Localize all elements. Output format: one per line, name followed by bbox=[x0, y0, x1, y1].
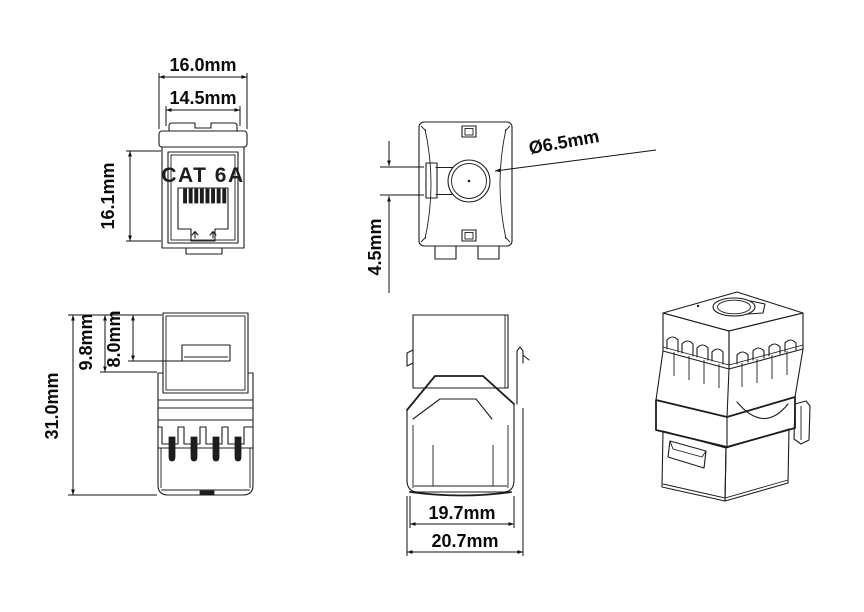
iso-cable-hole bbox=[713, 298, 755, 316]
iso-tower-slots bbox=[674, 351, 787, 388]
top-body-outline bbox=[419, 122, 512, 246]
iso-idc-teeth bbox=[667, 337, 796, 364]
roof-chamfer bbox=[407, 376, 514, 410]
product-label: CAT 6A bbox=[161, 164, 244, 187]
dim-label-hole-diameter: Ø6.5mm bbox=[527, 126, 600, 158]
hole-center-mark bbox=[468, 180, 471, 183]
dim-label-slot-offset: 4.5mm bbox=[365, 218, 385, 275]
ext-lines-4-5 bbox=[380, 167, 424, 195]
right-latch-arm bbox=[517, 347, 529, 404]
corner-ticks bbox=[421, 126, 510, 242]
side-window bbox=[182, 345, 230, 361]
isometric-view bbox=[656, 292, 810, 501]
front-block bbox=[163, 313, 248, 393]
dim-label-overall-width: 20.7mm bbox=[431, 531, 498, 551]
ext-lines-16-1 bbox=[126, 151, 161, 241]
iso-latch-arm bbox=[794, 401, 810, 444]
mid-body-lines bbox=[158, 400, 253, 420]
bottom-tab bbox=[186, 248, 222, 254]
front-view: CAT 6A 16.0mm 14.5mm 16.1mm bbox=[98, 55, 247, 254]
iso-cable-hole-inner bbox=[718, 300, 751, 314]
basket-outline bbox=[407, 404, 514, 492]
iso-collar-scoop bbox=[737, 402, 788, 419]
dim-label-front-depth: 9.8mm bbox=[76, 313, 96, 370]
dim-label-total-depth: 31.0mm bbox=[42, 372, 62, 439]
idc-pins bbox=[169, 437, 241, 461]
top-tab-inner bbox=[465, 129, 473, 136]
leader-line-hole bbox=[495, 150, 656, 171]
side-view: 31.0mm 9.8mm 8.0mm bbox=[42, 310, 253, 495]
engineering-drawing-sheet: CAT 6A 16.0mm 14.5mm 16.1mm bbox=[0, 0, 864, 612]
dim-label-body-width: 14.5mm bbox=[169, 88, 236, 108]
dim-label-cap-width: 16.0mm bbox=[169, 55, 236, 75]
iso-top-mark bbox=[697, 305, 699, 307]
right-foot bbox=[478, 246, 499, 259]
iso-cap-right-face bbox=[729, 313, 803, 369]
basket-inner-lines bbox=[413, 425, 508, 488]
top-view: 4.5mm Ø6.5mm bbox=[365, 122, 656, 293]
latch-hooks bbox=[192, 232, 216, 239]
dim-label-window-offset: 8.0mm bbox=[104, 310, 124, 367]
cap-latch-tabs bbox=[169, 123, 237, 131]
front-block-inner bbox=[166, 316, 245, 390]
keyhole-pocket bbox=[426, 163, 437, 198]
bottom-key bbox=[200, 491, 214, 495]
bottom-tab-inner bbox=[465, 233, 473, 240]
iso-cap-left-face bbox=[663, 313, 729, 369]
technical-drawing-canvas: CAT 6A 16.0mm 14.5mm 16.1mm bbox=[0, 0, 864, 612]
jack-cap bbox=[159, 131, 247, 147]
iso-box-right-face bbox=[725, 429, 789, 501]
rear-view: 19.7mm 20.7mm bbox=[407, 315, 529, 556]
roof-inner bbox=[413, 399, 492, 419]
rear-top-block bbox=[413, 315, 508, 388]
left-foot bbox=[435, 246, 456, 259]
iso-window bbox=[668, 441, 706, 468]
rj45-contacts bbox=[184, 189, 226, 203]
iso-collar bbox=[656, 397, 795, 447]
dim-label-face-height: 16.1mm bbox=[98, 162, 118, 229]
left-latch-tab bbox=[407, 350, 413, 366]
dim-label-inner-width: 19.7mm bbox=[428, 503, 495, 523]
